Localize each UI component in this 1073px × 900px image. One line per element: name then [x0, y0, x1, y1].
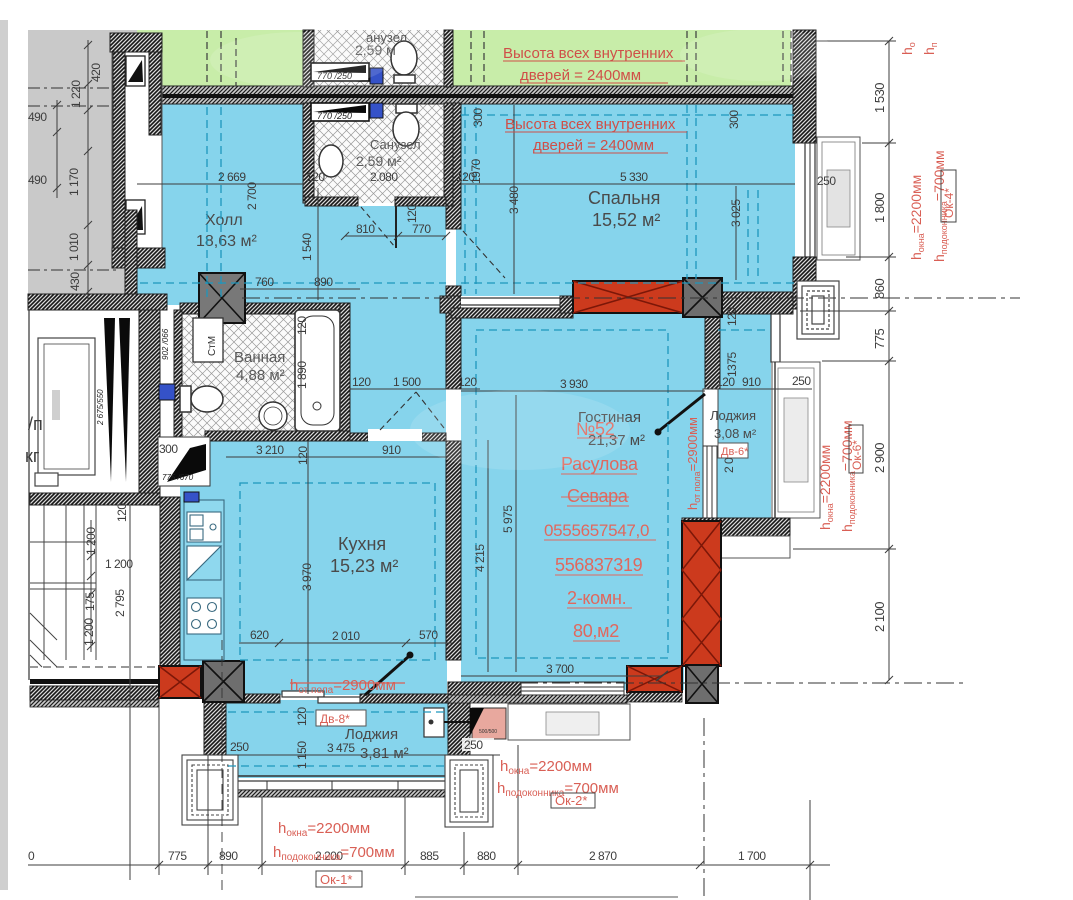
svg-text:2 795: 2 795	[113, 589, 127, 617]
svg-text:570: 570	[419, 628, 438, 642]
svg-text:120: 120	[725, 307, 739, 326]
svg-text:250: 250	[817, 174, 836, 188]
svg-text:120: 120	[295, 316, 309, 335]
svg-text:3 970: 3 970	[300, 563, 314, 591]
svg-text:2 700: 2 700	[245, 182, 259, 210]
svg-text:18,63 м²: 18,63 м²	[196, 233, 257, 250]
svg-text:420: 420	[89, 63, 103, 82]
svg-text:770 /250: 770 /250	[317, 111, 352, 121]
svg-text:Дв-6*: Дв-6*	[721, 446, 749, 458]
svg-text:Ок-6*: Ок-6*	[850, 440, 864, 470]
svg-text:120: 120	[352, 375, 371, 389]
svg-text:775: 775	[168, 849, 187, 863]
svg-text:890: 890	[219, 849, 238, 863]
svg-text:3 025: 3 025	[729, 199, 743, 227]
svg-text:4 215: 4 215	[473, 544, 487, 572]
svg-text:250: 250	[230, 740, 249, 754]
svg-text:5 975: 5 975	[501, 505, 515, 533]
svg-text:0: 0	[28, 849, 35, 863]
svg-text:910: 910	[382, 443, 401, 457]
svg-text:500/500: 500/500	[479, 729, 497, 735]
svg-text:Кухня: Кухня	[338, 534, 386, 554]
svg-text:775: 775	[872, 329, 887, 349]
svg-text:430: 430	[68, 272, 82, 291]
svg-text:120: 120	[405, 204, 419, 223]
svg-text:880: 880	[477, 849, 496, 863]
svg-text:885: 885	[420, 849, 439, 863]
svg-text:2 675/550: 2 675/550	[96, 389, 105, 426]
svg-text:120: 120	[296, 446, 310, 465]
svg-text:1 200: 1 200	[84, 527, 98, 555]
svg-text:2 100: 2 100	[872, 602, 887, 632]
svg-text:2-комн.: 2-комн.	[567, 588, 626, 608]
svg-text:250: 250	[464, 738, 483, 752]
svg-text:Ок-4*: Ок-4*	[942, 188, 956, 218]
svg-text:Санузел: Санузел	[370, 137, 421, 152]
svg-text:2 870: 2 870	[589, 849, 617, 863]
svg-text:Дв-8*: Дв-8*	[320, 712, 350, 726]
svg-text:Высота всех внутренних: Высота всех внутренних	[503, 45, 674, 62]
svg-text:СтМ: СтМ	[207, 336, 218, 356]
svg-text:1 890: 1 890	[295, 361, 309, 389]
svg-text:15,23 м²: 15,23 м²	[330, 556, 398, 576]
svg-text:890: 890	[314, 275, 333, 289]
svg-text:770: 770	[412, 222, 431, 236]
svg-text:300: 300	[159, 442, 178, 456]
svg-text:3 480: 3 480	[507, 186, 521, 214]
svg-text:3 475: 3 475	[327, 741, 355, 755]
svg-text:0555657547,0: 0555657547,0	[544, 521, 649, 540]
svg-text:Высота всех внутренних: Высота всех внутренних	[505, 116, 676, 133]
svg-text:556837319: 556837319	[555, 555, 643, 575]
svg-text:Ок-2*: Ок-2*	[555, 793, 587, 808]
svg-text:1 200: 1 200	[105, 557, 133, 571]
svg-text:910: 910	[742, 375, 761, 389]
svg-text:80,м2: 80,м2	[573, 621, 619, 641]
svg-text:1 800: 1 800	[872, 193, 887, 223]
svg-text:Ванная: Ванная	[234, 349, 285, 366]
svg-text:Севара: Севара	[567, 486, 629, 506]
svg-text:Лоджия: Лоджия	[710, 408, 756, 423]
svg-text:3 930: 3 930	[560, 377, 588, 391]
svg-text:1 220: 1 220	[69, 80, 83, 108]
svg-text:120: 120	[295, 707, 309, 726]
svg-text:760: 760	[255, 275, 274, 289]
svg-text:120: 120	[115, 503, 129, 522]
svg-text:120: 120	[456, 170, 475, 184]
svg-text:Ок-1*: Ок-1*	[320, 872, 352, 887]
svg-text:1 150: 1 150	[295, 741, 309, 769]
svg-text:300: 300	[471, 108, 485, 127]
svg-text:4,88 м²: 4,88 м²	[236, 367, 285, 384]
svg-text:810: 810	[356, 222, 375, 236]
svg-text:775 /670: 775 /670	[162, 473, 194, 482]
svg-text:620: 620	[250, 628, 269, 642]
svg-text:1375: 1375	[725, 351, 739, 377]
svg-text:120: 120	[306, 170, 325, 184]
svg-text:2 900: 2 900	[872, 443, 887, 473]
svg-text:кг: кг	[25, 446, 40, 466]
svg-text:120: 120	[458, 375, 477, 389]
svg-text:3 700: 3 700	[546, 662, 574, 676]
svg-text:15,52 м²: 15,52 м²	[592, 210, 660, 230]
svg-text:175: 175	[83, 592, 97, 611]
svg-text:902 /066: 902 /066	[161, 328, 170, 360]
svg-text:250: 250	[792, 374, 811, 388]
svg-text:1 530: 1 530	[872, 83, 887, 113]
svg-text:1 200: 1 200	[82, 618, 96, 646]
svg-text:Холл: Холл	[205, 212, 243, 229]
svg-text:5 330: 5 330	[620, 170, 648, 184]
svg-text:1 700: 1 700	[738, 849, 766, 863]
svg-text:2 669: 2 669	[218, 170, 246, 184]
svg-text:490: 490	[28, 173, 47, 187]
svg-text:300: 300	[727, 110, 741, 129]
svg-text:/п: /п	[28, 414, 43, 434]
svg-text:дверей = 2400мм: дверей = 2400мм	[520, 67, 641, 84]
svg-text:490: 490	[28, 110, 47, 124]
svg-text:2.080: 2.080	[370, 170, 398, 184]
svg-text:1 170: 1 170	[67, 168, 81, 196]
svg-text:дверей = 2400мм: дверей = 2400мм	[533, 137, 654, 154]
svg-text:3,81 м²: 3,81 м²	[360, 745, 409, 762]
svg-text:2 010: 2 010	[332, 629, 360, 643]
svg-text:3,08 м²: 3,08 м²	[714, 426, 757, 441]
svg-text:3 210: 3 210	[256, 443, 284, 457]
svg-text:2,59 м²: 2,59 м²	[356, 153, 402, 169]
svg-text:860: 860	[872, 279, 887, 299]
svg-text:1 500: 1 500	[393, 375, 421, 389]
svg-text:1 540: 1 540	[300, 233, 314, 261]
svg-text:1 010: 1 010	[67, 233, 81, 261]
svg-text:Спальня: Спальня	[588, 188, 660, 208]
